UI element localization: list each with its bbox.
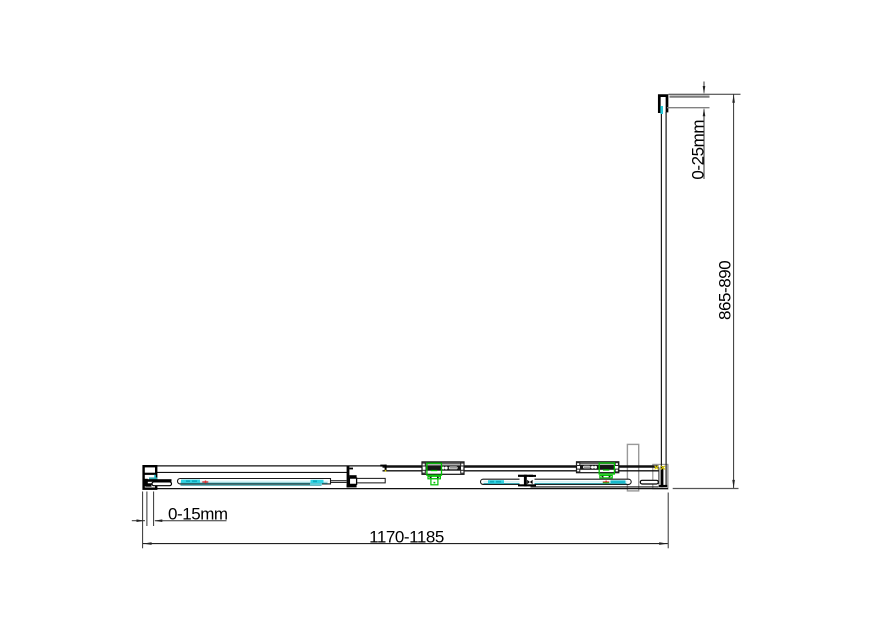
svg-text:865-890: 865-890 [716,261,735,320]
svg-text:0-25mm: 0-25mm [689,120,708,180]
svg-text:0-15mm: 0-15mm [168,505,228,524]
svg-text:1170-1185: 1170-1185 [369,527,444,546]
